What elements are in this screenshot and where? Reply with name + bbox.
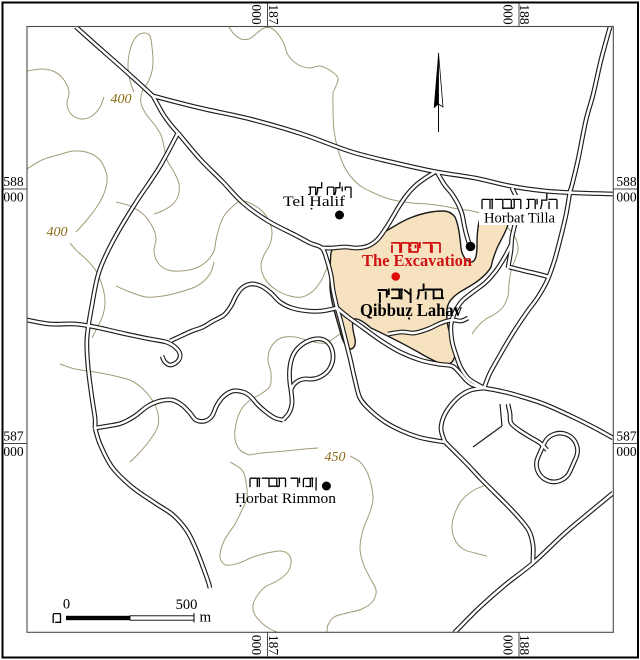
svg-text:587: 587: [3, 429, 24, 444]
svg-text:188: 188: [517, 635, 532, 656]
svg-text:Tel Halif: Tel Halif: [283, 194, 345, 210]
svg-text:Horbat Rimmon: Horbat Rimmon: [235, 491, 337, 507]
svg-text:500: 500: [176, 597, 198, 613]
svg-text:588: 588: [3, 174, 24, 189]
svg-text:m: m: [200, 610, 212, 626]
svg-text:000: 000: [3, 444, 24, 459]
svg-text:587: 587: [616, 429, 637, 444]
svg-text:000: 000: [249, 635, 264, 656]
svg-text:000: 000: [616, 444, 637, 459]
svg-text:000: 000: [3, 190, 24, 205]
svg-text:000: 000: [249, 4, 264, 25]
svg-text:187: 187: [266, 4, 281, 25]
svg-text:The Excavation: The Excavation: [362, 251, 472, 270]
svg-text:000: 000: [501, 4, 516, 25]
svg-text:450: 450: [325, 450, 346, 465]
svg-text:000: 000: [501, 635, 516, 656]
svg-text:000: 000: [616, 190, 637, 205]
svg-text:0: 0: [63, 597, 70, 613]
svg-text:Horbat Tilla: Horbat Tilla: [484, 211, 555, 227]
svg-text:400: 400: [47, 225, 68, 240]
svg-text:187: 187: [266, 635, 281, 656]
svg-text:400: 400: [111, 92, 132, 107]
svg-text:188: 188: [517, 4, 532, 25]
svg-text:588: 588: [616, 174, 637, 189]
